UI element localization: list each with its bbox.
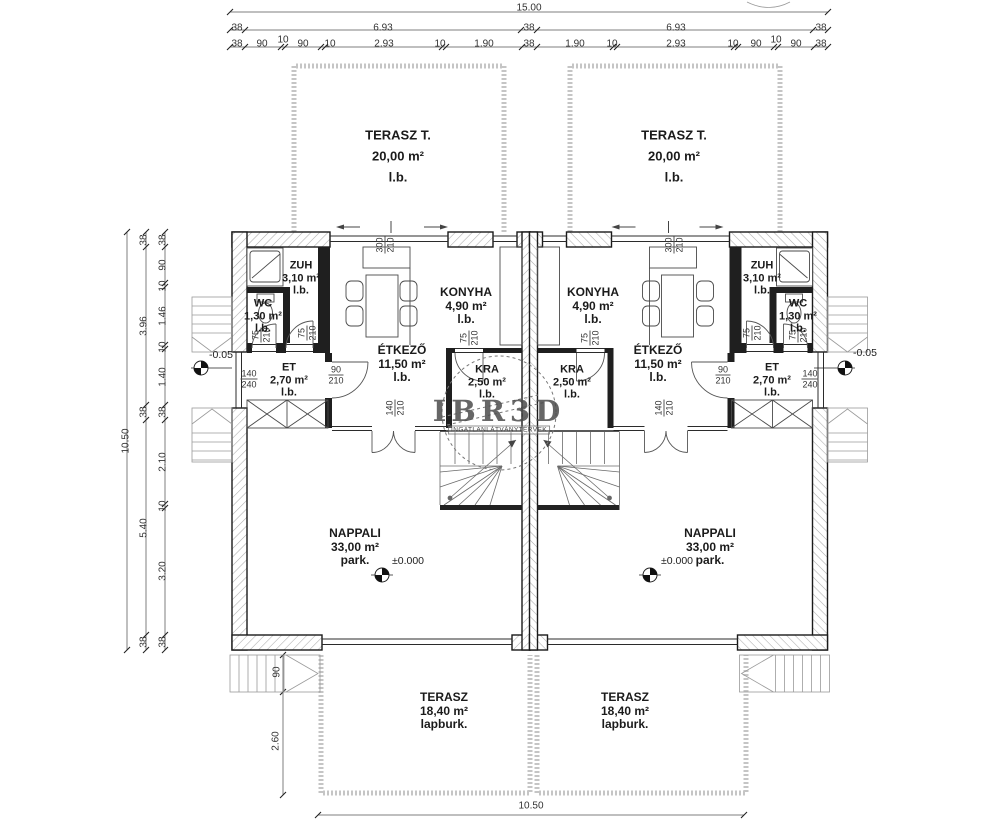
door-size-label: 75210 bbox=[297, 325, 318, 340]
dim-label: 1.46 bbox=[158, 306, 169, 325]
room-label-konyha-right: KONYHA4,90 m²l.b. bbox=[567, 286, 619, 327]
room-label-zuh-right: ZUH3,10 m²l.b. bbox=[743, 259, 781, 297]
door-size-label: 300210 bbox=[664, 236, 685, 253]
room-label-et-left: ET2,70 m²l.b. bbox=[270, 361, 308, 399]
door-size-label: 140240 bbox=[240, 369, 257, 390]
room-label-wc-right: WC1,30 m²l.b. bbox=[779, 297, 817, 335]
room-label-wc-left: WC1,30 m²l.b. bbox=[244, 297, 282, 335]
dim-label: 90 bbox=[750, 39, 761, 50]
dim-label: 38 bbox=[158, 636, 169, 647]
level-label: -0.05 bbox=[853, 347, 877, 359]
dim-label: 10 bbox=[158, 341, 169, 352]
dim-label: 2.93 bbox=[666, 39, 685, 50]
room-label-zuh-left: ZUH3,10 m²l.b. bbox=[282, 259, 320, 297]
room-label-et-right: ET2,70 m²l.b. bbox=[753, 361, 791, 399]
dim-label: 3.96 bbox=[139, 316, 150, 335]
dim-label: 6.93 bbox=[666, 23, 685, 34]
dim-label: 38 bbox=[231, 23, 242, 34]
dim-label: 38 bbox=[523, 39, 534, 50]
room-label-konyha-left: KONYHA4,90 m²l.b. bbox=[440, 286, 492, 327]
dim-label: 38 bbox=[139, 234, 150, 245]
room-label-terasz-t-right: TERASZ T.20,00 m²l.b. bbox=[641, 125, 707, 188]
door-size-label: 300210 bbox=[375, 236, 396, 253]
dim-label: 38 bbox=[139, 636, 150, 647]
door-size-label: 140210 bbox=[385, 399, 406, 416]
dim-label: 38 bbox=[231, 39, 242, 50]
dim-label: 2.10 bbox=[158, 452, 169, 471]
dim-label: 10 bbox=[158, 280, 169, 291]
room-label-nappali-left: NAPPALI33,00 m²park. bbox=[329, 527, 381, 568]
dim-label: 38 bbox=[158, 234, 169, 245]
door-size-label: 75210 bbox=[742, 325, 763, 340]
door-size-label: 75210 bbox=[459, 330, 480, 345]
room-label-etkezo-right: ÉTKEZŐ11,50 m²l.b. bbox=[634, 344, 683, 385]
door-size-label: 90210 bbox=[328, 365, 343, 386]
dim-label: 10 bbox=[606, 39, 617, 50]
dim-overall-top: 15.00 bbox=[516, 3, 541, 14]
room-label-etkezo-left: ÉTKEZŐ11,50 m²l.b. bbox=[378, 344, 427, 385]
dim-label: 90 bbox=[158, 259, 169, 270]
dim-overall-bottom: 10.50 bbox=[518, 801, 543, 812]
dim-label: 1.90 bbox=[565, 39, 584, 50]
floor-plan-page: 15.00386.93386.933838901090102.93101.903… bbox=[0, 0, 1000, 821]
room-label-terasz-left: TERASZ18,40 m²lapburk. bbox=[420, 691, 468, 732]
room-label-terasz-t-left: TERASZ T.20,00 m²l.b. bbox=[365, 125, 431, 188]
dim-label: 38 bbox=[523, 23, 534, 34]
dim-overall-left: 10.50 bbox=[121, 428, 132, 453]
dim-label: 1.90 bbox=[474, 39, 493, 50]
watermark-subtext: INGATLANLÁTVÁNYTERVEK bbox=[448, 426, 550, 435]
door-size-label: 140240 bbox=[801, 369, 818, 390]
room-label-terasz-right: TERASZ18,40 m²lapburk. bbox=[601, 691, 649, 732]
dim-label: 2.60 bbox=[271, 731, 282, 750]
level-label: ±0.000 bbox=[392, 555, 424, 567]
dim-label: 2.93 bbox=[374, 39, 393, 50]
level-label: -0.05 bbox=[209, 349, 233, 361]
dim-label: 90 bbox=[272, 666, 283, 677]
dim-label: 10 bbox=[158, 500, 169, 511]
dim-label: 90 bbox=[297, 39, 308, 50]
dim-label: 3.20 bbox=[158, 561, 169, 580]
dim-label: 38 bbox=[815, 23, 826, 34]
dim-label: 38 bbox=[139, 406, 150, 417]
door-size-label: 140210 bbox=[654, 399, 675, 416]
dim-label: 10 bbox=[434, 39, 445, 50]
door-size-label: 75210 bbox=[580, 330, 601, 345]
room-label-nappali-right: NAPPALI33,00 m²park. bbox=[684, 527, 736, 568]
watermark-logo: IBR3D bbox=[433, 394, 566, 428]
dim-label: 10 bbox=[324, 39, 335, 50]
dim-label: 1.40 bbox=[158, 367, 169, 386]
dim-label: 90 bbox=[790, 39, 801, 50]
dim-label: 5.40 bbox=[139, 518, 150, 537]
dim-label: 90 bbox=[256, 39, 267, 50]
dim-label: 10 bbox=[727, 39, 738, 50]
door-size-label: 90210 bbox=[715, 365, 730, 386]
dim-label: 38 bbox=[158, 406, 169, 417]
dim-label: 38 bbox=[815, 39, 826, 50]
dim-label: 10 bbox=[770, 35, 781, 46]
dim-label: 6.93 bbox=[373, 23, 392, 34]
dim-label: 10 bbox=[277, 35, 288, 46]
